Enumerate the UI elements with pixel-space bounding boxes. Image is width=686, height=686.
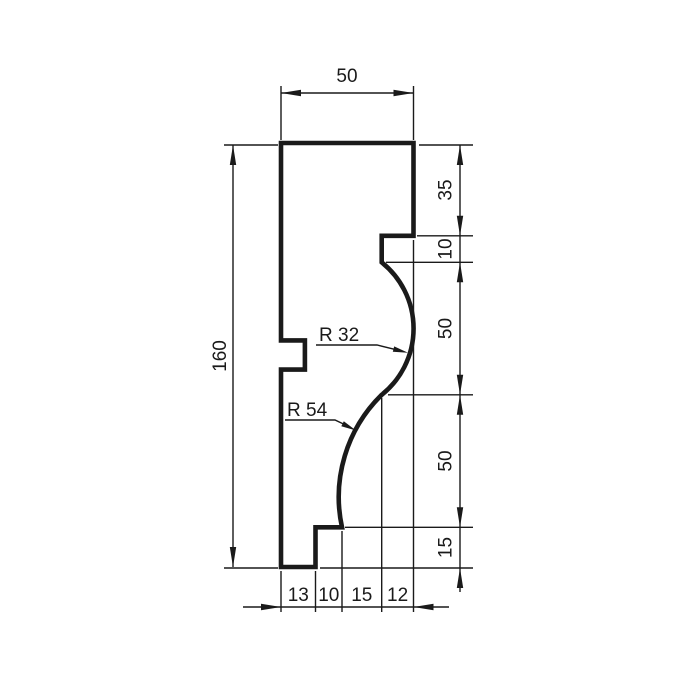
arrow-right-10-bottom-icon — [457, 262, 463, 282]
arrow-left-up-icon — [230, 145, 236, 165]
dim-right-10-label: 10 — [436, 238, 457, 259]
extension-lines — [224, 86, 473, 612]
radius-r54-label: R 54 — [287, 400, 328, 421]
arrow-right-5050-down-icon — [457, 375, 463, 395]
dim-left-height-label: 160 — [210, 340, 231, 372]
dim-right-35-label: 35 — [436, 179, 457, 200]
dim-bottom-15-label: 15 — [351, 585, 372, 606]
dim-top-width-label: 50 — [336, 66, 357, 87]
leader-r54-arrow-icon — [341, 421, 356, 430]
dim-bottom-12-label: 12 — [387, 585, 408, 606]
arrow-left-down-icon — [230, 547, 236, 567]
dimension-arrows — [230, 90, 463, 610]
arrow-bottom-right-icon — [414, 604, 434, 610]
dimension-lines — [233, 93, 460, 607]
profile-outline — [281, 143, 414, 567]
arrow-right-35-top-icon — [457, 145, 463, 165]
arrow-right-35-bottom-icon — [457, 216, 463, 236]
drawing-canvas: 50 160 35 10 50 50 15 13 10 15 12 R 32 R… — [0, 0, 686, 686]
radius-r32-label: R 32 — [319, 325, 359, 346]
arrow-right-15-bottom-icon — [457, 568, 463, 588]
arrow-right-50b-bottom-icon — [457, 507, 463, 527]
dim-bottom-10-label: 10 — [318, 585, 339, 606]
dim-bottom-13-label: 13 — [288, 585, 309, 606]
leader-r32-arrow-icon — [393, 346, 408, 352]
arrow-right-5050-up-icon — [457, 395, 463, 415]
arrow-top-left-icon — [281, 90, 301, 96]
molding-profile-drawing: 50 160 35 10 50 50 15 13 10 15 12 R 32 R… — [0, 0, 686, 686]
arrow-bottom-left-icon — [261, 604, 281, 610]
dim-right-50a-label: 50 — [436, 318, 457, 339]
dim-right-50b-label: 50 — [436, 450, 457, 471]
dim-right-15-label: 15 — [436, 537, 457, 558]
arrow-top-right-icon — [394, 90, 414, 96]
